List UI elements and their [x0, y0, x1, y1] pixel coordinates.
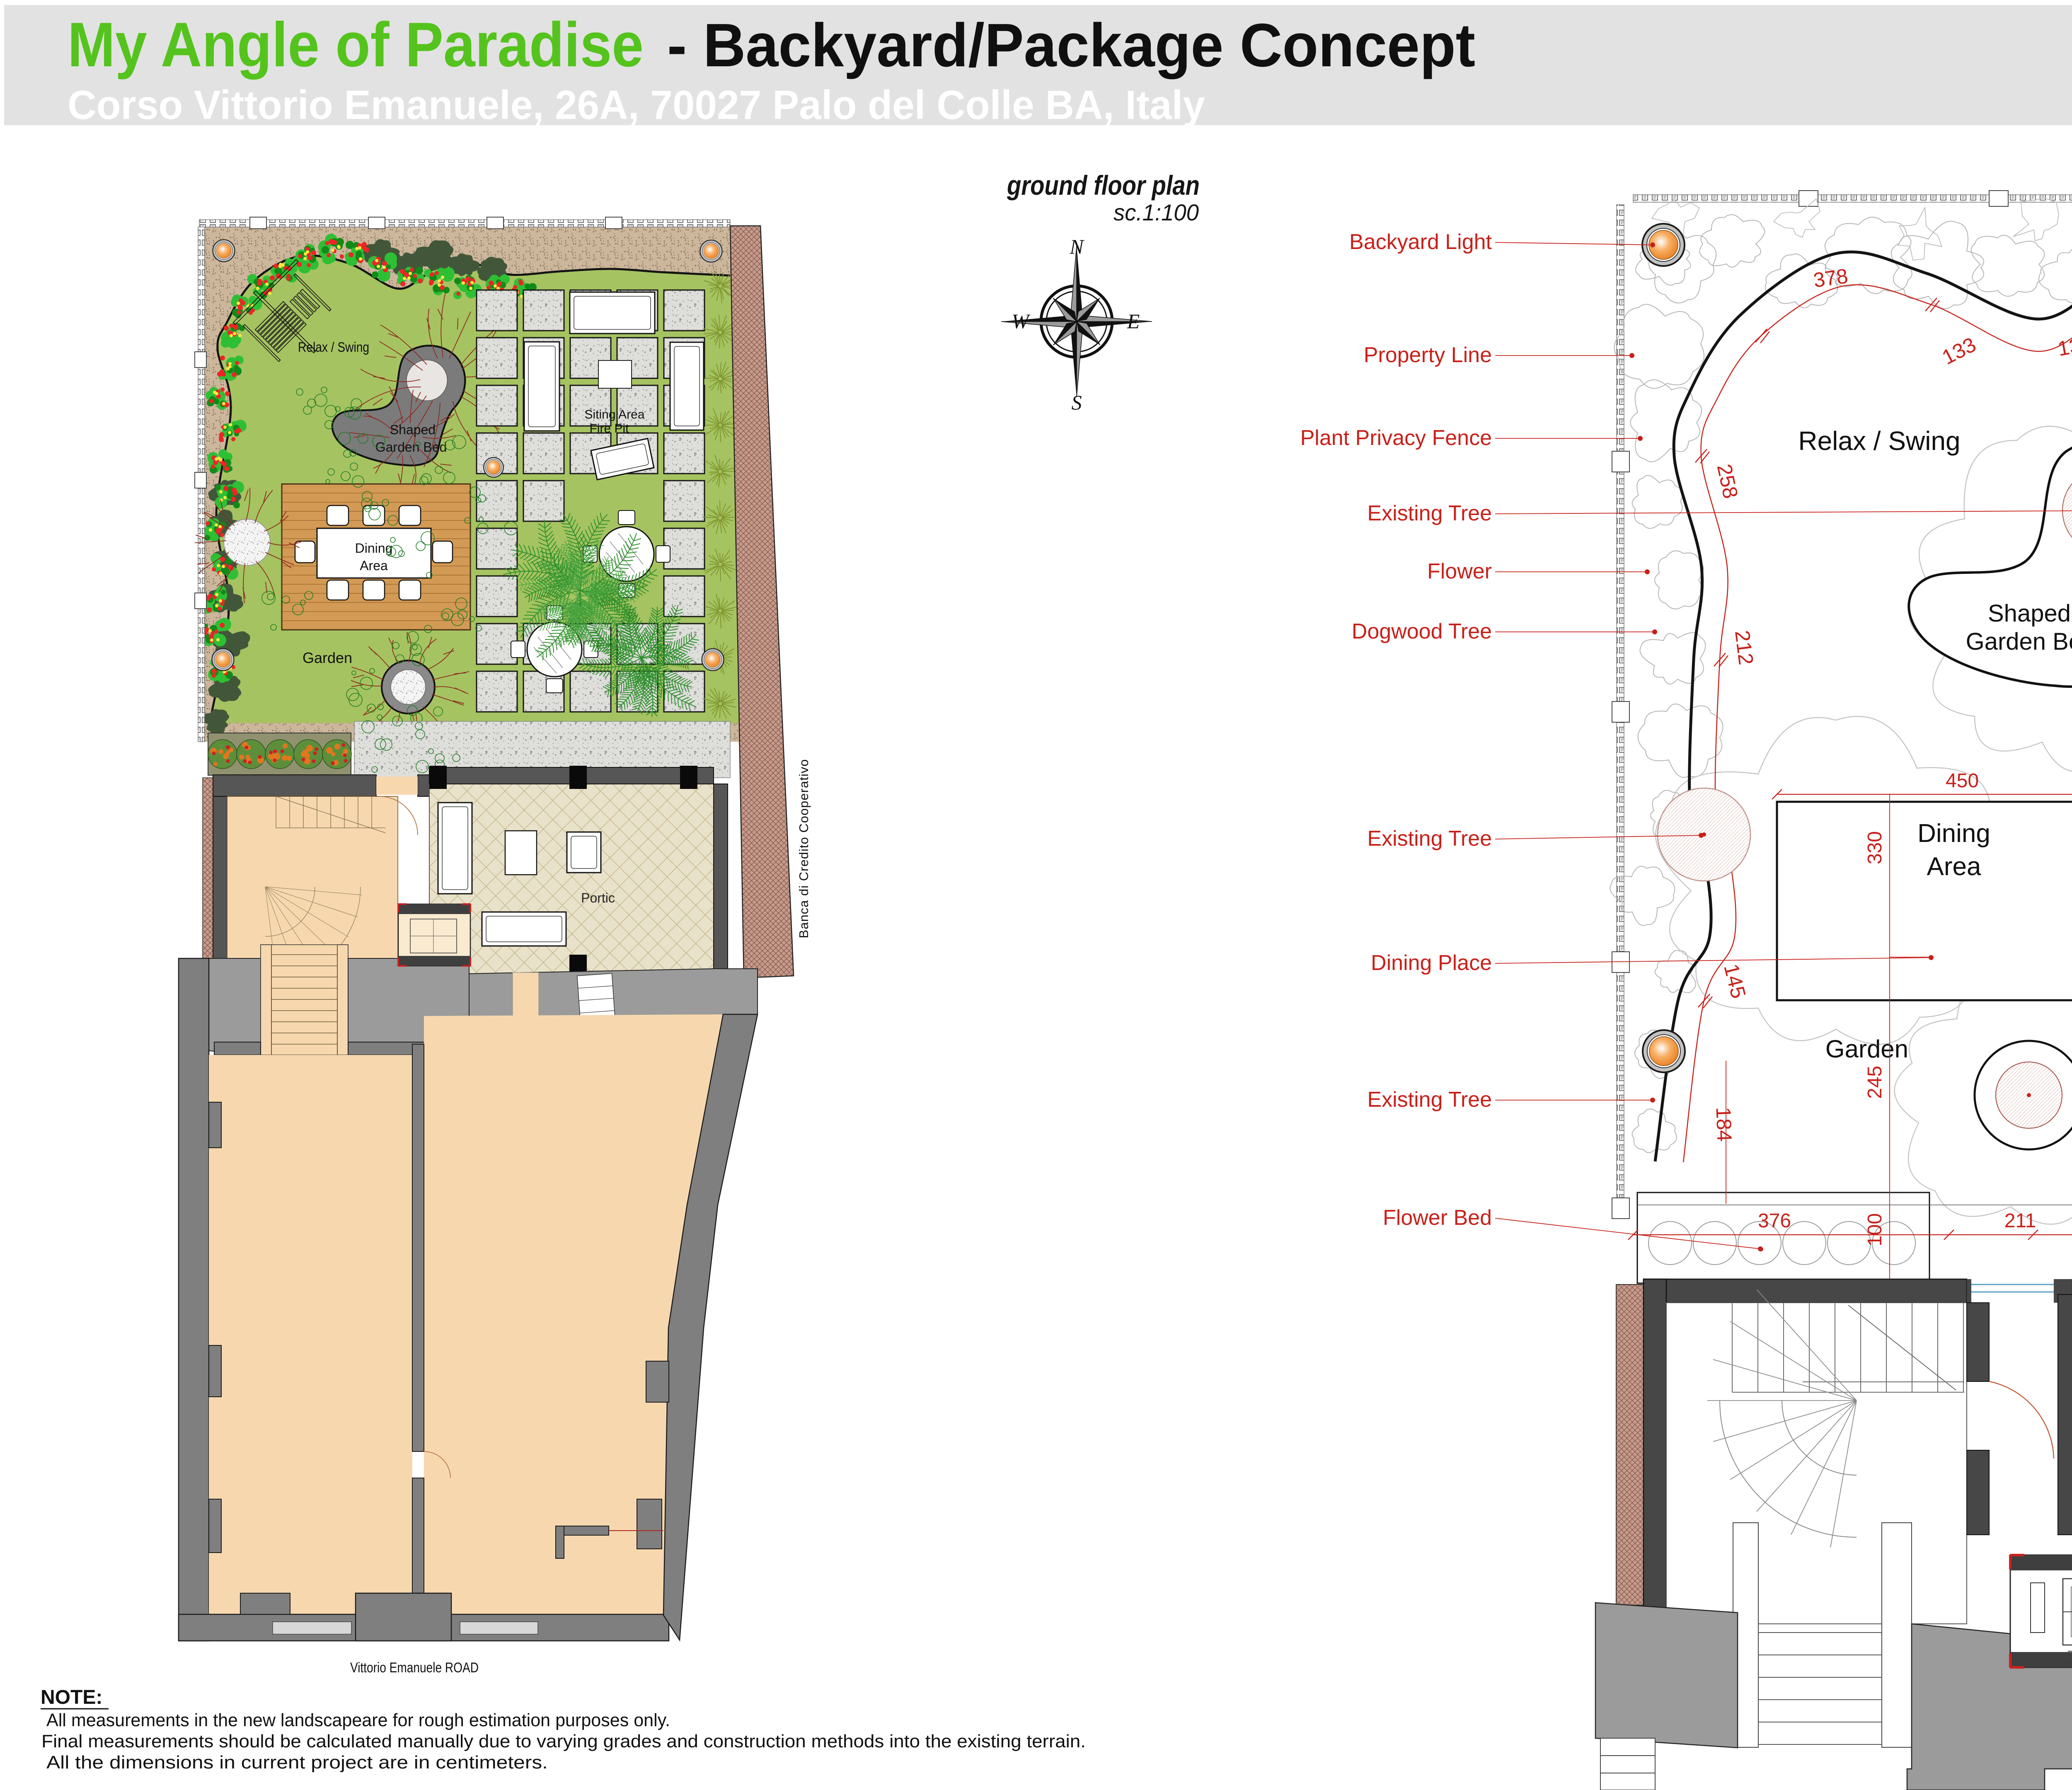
- svg-text:330: 330: [1864, 831, 1886, 864]
- svg-text:Garden Bed: Garden Bed: [1966, 628, 2072, 655]
- svg-text:Garden Bed: Garden Bed: [375, 440, 447, 455]
- svg-text:212: 212: [1731, 629, 1758, 666]
- svg-text:ground floor plan: ground floor plan: [1007, 170, 1200, 201]
- svg-text:Area: Area: [360, 558, 388, 573]
- svg-text:Plant Privacy Fence: Plant Privacy Fence: [1300, 426, 1492, 450]
- svg-text:Flower: Flower: [1427, 559, 1492, 583]
- svg-text:Shaped: Shaped: [390, 422, 436, 437]
- svg-text:W: W: [1012, 310, 1031, 333]
- svg-text:NOTE:: NOTE:: [41, 1686, 102, 1708]
- svg-text:Portic: Portic: [581, 890, 615, 905]
- svg-text:Dining: Dining: [1917, 819, 1990, 848]
- svg-text:S: S: [1072, 391, 1082, 414]
- svg-text:450: 450: [1946, 770, 1979, 792]
- svg-text:Flower Bed: Flower Bed: [1383, 1206, 1492, 1230]
- svg-text:245: 245: [1864, 1066, 1886, 1099]
- svg-text:184: 184: [1712, 1107, 1736, 1142]
- svg-text:Relax / Swing: Relax / Swing: [298, 339, 369, 355]
- svg-text:Dining Place: Dining Place: [1371, 951, 1492, 975]
- svg-text:378: 378: [1812, 264, 1849, 292]
- svg-text:100: 100: [1864, 1213, 1886, 1246]
- svg-text:Property Line: Property Line: [1364, 343, 1492, 367]
- svg-text:- Backyard/Package Concept: - Backyard/Package Concept: [667, 11, 1475, 80]
- svg-text:Area: Area: [1927, 852, 1981, 881]
- svg-text:All measurements in the new la: All measurements in the new landscapeare…: [46, 1710, 670, 1730]
- svg-text:E: E: [1127, 310, 1140, 333]
- svg-text:Shaped: Shaped: [1988, 600, 2071, 627]
- svg-text:Relax / Swing: Relax / Swing: [1798, 426, 1960, 456]
- svg-text:Existing Tree: Existing Tree: [1367, 501, 1492, 525]
- svg-text:My Angle of Paradise: My Angle of Paradise: [68, 10, 644, 80]
- svg-text:376: 376: [1758, 1210, 1791, 1232]
- svg-text:Backyard Light: Backyard Light: [1349, 230, 1492, 254]
- svg-text:Siting Area: Siting Area: [584, 408, 644, 421]
- svg-text:Existing Tree: Existing Tree: [1367, 827, 1492, 851]
- svg-text:Existing Tree: Existing Tree: [1367, 1088, 1492, 1112]
- svg-text:Banca di Credito Cooperativo: Banca di Credito Cooperativo: [796, 759, 811, 939]
- svg-text:Vittorio Emanuele ROAD: Vittorio Emanuele ROAD: [350, 1660, 479, 1676]
- svg-text:Final measurements should be c: Final measurements should be calculated …: [41, 1731, 1086, 1751]
- svg-text:Garden: Garden: [1825, 1035, 1908, 1063]
- svg-text:Dogwood Tree: Dogwood Tree: [1352, 619, 1492, 643]
- svg-text:211: 211: [2004, 1210, 2036, 1232]
- svg-text:N: N: [1069, 235, 1084, 258]
- svg-text:Garden: Garden: [303, 649, 352, 666]
- svg-text:All the dimensions in current: All the dimensions in current project ar…: [46, 1752, 548, 1773]
- svg-text:sc.1:100: sc.1:100: [1113, 199, 1199, 225]
- svg-text:Corso Vittorio Emanuele, 26A,: Corso Vittorio Emanuele, 26A, 70027 Palo…: [68, 82, 1205, 128]
- svg-text:Fire Pit: Fire Pit: [589, 422, 629, 435]
